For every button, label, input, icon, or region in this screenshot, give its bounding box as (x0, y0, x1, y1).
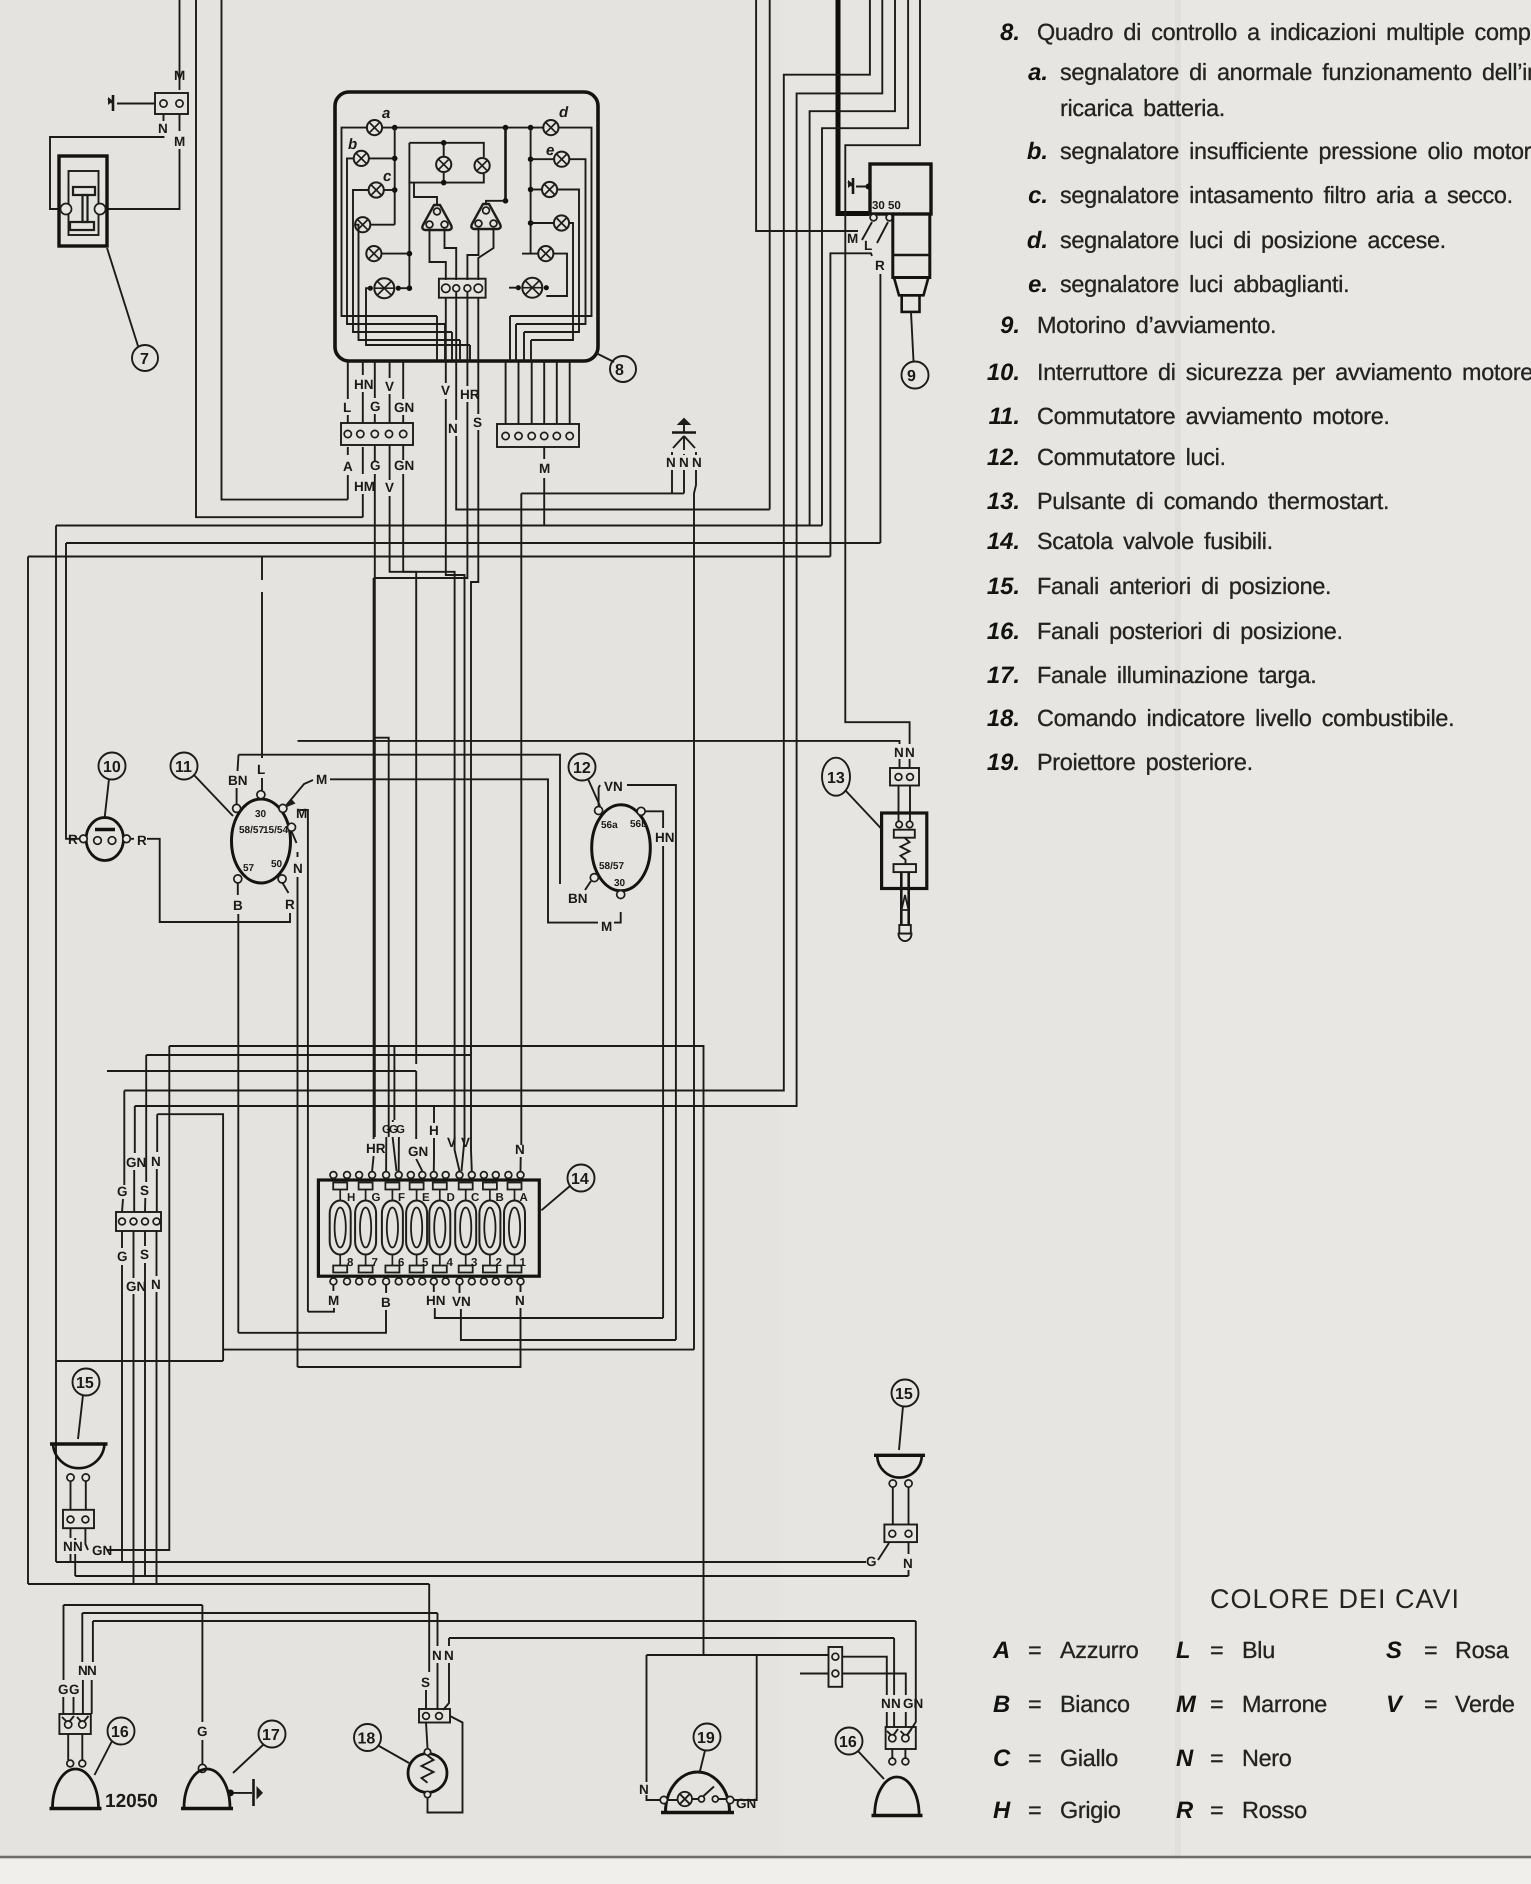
svg-text:G: G (117, 1249, 128, 1264)
svg-text:e.: e. (1028, 271, 1048, 298)
svg-text:Marrone: Marrone (1242, 1691, 1327, 1717)
svg-text:GN: GN (126, 1279, 146, 1294)
svg-text:Interruttore di sicurezza per: Interruttore di sicurezza per avviamento… (1037, 359, 1531, 385)
svg-text:50: 50 (888, 200, 901, 212)
svg-text:Motorino d’avviamento.: Motorino d’avviamento. (1037, 312, 1276, 338)
svg-text:Nero: Nero (1242, 1745, 1292, 1771)
svg-text:Commutatore avviamento motore.: Commutatore avviamento motore. (1037, 403, 1390, 429)
svg-text:Commutatore luci.: Commutatore luci. (1037, 444, 1226, 470)
svg-text:58/57: 58/57 (239, 825, 264, 836)
svg-text:10: 10 (103, 759, 121, 776)
svg-text:30: 30 (255, 809, 267, 820)
svg-text:8: 8 (347, 1257, 354, 1269)
svg-text:B: B (993, 1691, 1010, 1718)
svg-text:50: 50 (271, 859, 283, 870)
svg-text:13: 13 (827, 770, 845, 787)
svg-text:d: d (559, 104, 569, 121)
svg-text:GN: GN (394, 400, 414, 415)
svg-text:L: L (1176, 1637, 1191, 1664)
svg-text:N: N (432, 1648, 442, 1663)
svg-text:N: N (891, 1696, 901, 1711)
svg-text:Fanale illuminazione targa.: Fanale illuminazione targa. (1037, 662, 1316, 688)
svg-text:N: N (444, 1648, 454, 1663)
svg-text:56b: 56b (630, 819, 647, 830)
svg-text:a: a (382, 105, 390, 122)
svg-text:N: N (293, 861, 303, 876)
svg-text:GN: GN (736, 1796, 756, 1811)
svg-text:c: c (383, 168, 392, 185)
svg-text:12: 12 (573, 760, 591, 777)
svg-text:15.: 15. (987, 573, 1020, 600)
svg-text:M: M (174, 134, 185, 149)
svg-text:B: B (381, 1295, 391, 1310)
svg-text:N: N (639, 1782, 649, 1797)
svg-text:19: 19 (697, 1730, 715, 1747)
svg-text:16: 16 (839, 1734, 857, 1751)
svg-text:V: V (441, 383, 450, 398)
svg-text:17.: 17. (987, 662, 1020, 689)
svg-text:V: V (1386, 1691, 1404, 1718)
svg-text:N: N (158, 121, 168, 136)
svg-text:=: = (1210, 1691, 1223, 1717)
svg-text:GN: GN (126, 1155, 146, 1170)
svg-text:N: N (894, 745, 904, 760)
svg-text:11: 11 (175, 759, 192, 776)
svg-text:HN: HN (354, 377, 374, 392)
svg-text:3: 3 (471, 1257, 477, 1269)
svg-text:Giallo: Giallo (1060, 1745, 1118, 1771)
svg-text:=: = (1210, 1745, 1223, 1771)
svg-text:V: V (385, 480, 394, 495)
svg-text:Grigio: Grigio (1060, 1797, 1121, 1823)
svg-text:N: N (87, 1663, 97, 1678)
svg-text:R: R (68, 832, 78, 847)
svg-text:5: 5 (422, 1257, 429, 1269)
svg-text:M: M (1176, 1691, 1197, 1718)
svg-text:Rosa: Rosa (1455, 1637, 1510, 1663)
svg-text:15/54: 15/54 (263, 825, 288, 836)
svg-text:E: E (422, 1192, 430, 1204)
svg-text:S: S (421, 1675, 430, 1690)
svg-text:HR: HR (460, 387, 480, 402)
svg-text:M: M (316, 772, 327, 787)
svg-text:R: R (1176, 1797, 1194, 1824)
svg-text:13.: 13. (987, 488, 1020, 515)
svg-text:N: N (692, 455, 702, 470)
svg-text:1: 1 (520, 1257, 527, 1269)
svg-text:N: N (905, 745, 915, 760)
svg-text:=: = (1028, 1637, 1041, 1663)
svg-text:4: 4 (447, 1257, 454, 1269)
svg-text:L: L (864, 238, 872, 253)
svg-text:17: 17 (262, 1727, 280, 1744)
svg-text:2: 2 (496, 1257, 502, 1269)
svg-text:=: = (1424, 1637, 1437, 1663)
svg-text:HR: HR (366, 1141, 386, 1156)
svg-text:V: V (385, 379, 394, 394)
svg-text:15: 15 (895, 1386, 913, 1403)
svg-text:7: 7 (140, 351, 149, 368)
svg-text:c.: c. (1028, 182, 1048, 209)
svg-text:A: A (343, 459, 353, 474)
svg-text:=: = (1210, 1637, 1223, 1663)
svg-text:G: G (370, 399, 381, 414)
svg-text:18.: 18. (987, 705, 1020, 732)
svg-text:S: S (140, 1183, 149, 1198)
svg-text:8: 8 (615, 362, 624, 379)
svg-text:S: S (1386, 1637, 1402, 1664)
svg-text:S: S (473, 415, 482, 430)
svg-text:8.: 8. (1000, 19, 1020, 46)
svg-text:9: 9 (907, 368, 916, 385)
svg-text:58/57: 58/57 (599, 861, 624, 872)
svg-text:GN: GN (903, 1696, 923, 1711)
svg-text:B: B (233, 898, 243, 913)
svg-text:ricarica batteria.: ricarica batteria. (1060, 95, 1225, 121)
svg-text:=: = (1028, 1691, 1041, 1717)
svg-text:HM: HM (354, 479, 375, 494)
svg-text:11.: 11. (989, 403, 1020, 430)
svg-text:BN: BN (228, 773, 248, 788)
svg-text:G: G (69, 1682, 80, 1697)
svg-text:12.: 12. (987, 444, 1020, 471)
svg-text:G: G (117, 1184, 128, 1199)
svg-text:V: V (461, 1135, 470, 1150)
svg-text:M: M (539, 461, 550, 476)
svg-text:segnalatore luci di posizione: segnalatore luci di posizione accese. (1060, 227, 1446, 253)
svg-text:G: G (396, 1124, 405, 1136)
svg-text:=: = (1424, 1691, 1437, 1717)
svg-text:R: R (875, 258, 885, 273)
svg-text:R: R (285, 897, 295, 912)
svg-text:b.: b. (1027, 138, 1048, 165)
svg-text:Blu: Blu (1242, 1637, 1275, 1663)
svg-text:30: 30 (614, 878, 626, 889)
svg-text:=: = (1028, 1797, 1041, 1823)
svg-text:N: N (73, 1539, 83, 1554)
svg-text:14: 14 (571, 1171, 589, 1188)
svg-text:GN: GN (394, 458, 414, 473)
svg-text:M: M (296, 806, 307, 821)
svg-text:7: 7 (372, 1257, 378, 1269)
svg-text:Scatola valvole fusibili.: Scatola valvole fusibili. (1037, 528, 1273, 554)
svg-text:F: F (398, 1192, 405, 1204)
svg-text:Proiettore posteriore.: Proiettore posteriore. (1037, 749, 1253, 775)
svg-text:57: 57 (243, 863, 255, 874)
svg-text:15: 15 (76, 1375, 94, 1392)
svg-text:16: 16 (111, 1724, 129, 1741)
svg-text:N: N (881, 1696, 891, 1711)
svg-text:56a: 56a (601, 820, 618, 831)
svg-text:G: G (866, 1554, 877, 1569)
svg-text:=: = (1210, 1797, 1223, 1823)
svg-text:segnalatore luci abbaglianti.: segnalatore luci abbaglianti. (1060, 271, 1349, 297)
svg-text:N: N (666, 455, 676, 470)
svg-text:D: D (447, 1192, 455, 1204)
svg-text:GN: GN (408, 1144, 428, 1159)
svg-text:d.: d. (1027, 227, 1048, 254)
svg-text:Pulsante di comando thermostar: Pulsante di comando thermostart. (1037, 488, 1389, 514)
svg-text:18: 18 (358, 1731, 376, 1748)
svg-text:=: = (1028, 1745, 1041, 1771)
svg-text:Bianco: Bianco (1060, 1691, 1130, 1717)
svg-text:N: N (515, 1142, 525, 1157)
svg-text:C: C (471, 1192, 479, 1204)
svg-text:Rosso: Rosso (1242, 1797, 1307, 1823)
svg-text:segnalatore intasamento filtro: segnalatore intasamento filtro aria a se… (1060, 182, 1513, 208)
svg-text:M: M (847, 231, 858, 246)
svg-text:G: G (197, 1724, 208, 1739)
svg-text:b: b (348, 136, 357, 153)
svg-text:G: G (58, 1682, 69, 1697)
svg-text:Quadro di controllo a indicazi: Quadro di controllo a indicazioni multip… (1037, 19, 1531, 45)
svg-text:N: N (151, 1277, 161, 1292)
svg-text:H: H (993, 1797, 1011, 1824)
svg-text:N: N (1176, 1745, 1194, 1772)
svg-text:19.: 19. (987, 749, 1020, 776)
svg-text:e: e (546, 142, 554, 159)
svg-text:N: N (903, 1556, 913, 1571)
svg-text:Verde: Verde (1455, 1691, 1515, 1717)
svg-text:Fanali anteriori di posizione.: Fanali anteriori di posizione. (1037, 573, 1331, 599)
svg-text:N: N (63, 1539, 73, 1554)
svg-text:Azzurro: Azzurro (1060, 1637, 1139, 1663)
svg-text:L: L (343, 400, 351, 415)
svg-text:HN: HN (655, 830, 675, 845)
svg-text:segnalatore insufficiente pres: segnalatore insufficiente pressione olio… (1060, 138, 1531, 164)
svg-text:14.: 14. (987, 528, 1020, 555)
svg-text:Fanali posteriori di posizione: Fanali posteriori di posizione. (1037, 618, 1343, 644)
svg-text:H: H (347, 1192, 355, 1204)
svg-text:30: 30 (872, 200, 885, 212)
svg-text:6: 6 (398, 1257, 404, 1269)
svg-text:16.: 16. (987, 618, 1020, 645)
svg-text:HN: HN (426, 1293, 446, 1308)
svg-text:Comando indicatore livello com: Comando indicatore livello combustibile. (1037, 705, 1454, 731)
svg-text:VN: VN (452, 1294, 471, 1309)
svg-text:S: S (140, 1247, 149, 1262)
svg-text:12050: 12050 (105, 1791, 158, 1812)
svg-text:G: G (372, 1192, 381, 1204)
svg-text:L: L (257, 762, 265, 777)
svg-text:B: B (496, 1192, 504, 1204)
svg-text:9.: 9. (1000, 312, 1020, 339)
svg-text:N: N (151, 1154, 161, 1169)
svg-text:M: M (328, 1293, 339, 1308)
svg-text:BN: BN (568, 891, 588, 906)
svg-text:M: M (601, 919, 612, 934)
svg-text:H: H (429, 1123, 439, 1138)
svg-text:a.: a. (1028, 59, 1048, 86)
svg-text:N: N (448, 421, 458, 436)
svg-text:COLORE DEI CAVI: COLORE DEI CAVI (1210, 1584, 1460, 1614)
svg-text:A: A (520, 1192, 528, 1204)
svg-text:VN: VN (604, 779, 623, 794)
svg-text:N: N (679, 455, 689, 470)
svg-text:N: N (515, 1293, 525, 1308)
svg-text:M: M (174, 68, 185, 83)
svg-text:segnalatore di anormale funzio: segnalatore di anormale funzionamento de… (1060, 59, 1531, 85)
svg-text:10.: 10. (987, 359, 1020, 386)
svg-text:A: A (992, 1637, 1010, 1664)
svg-text:C: C (993, 1745, 1011, 1772)
svg-text:R: R (137, 833, 147, 848)
